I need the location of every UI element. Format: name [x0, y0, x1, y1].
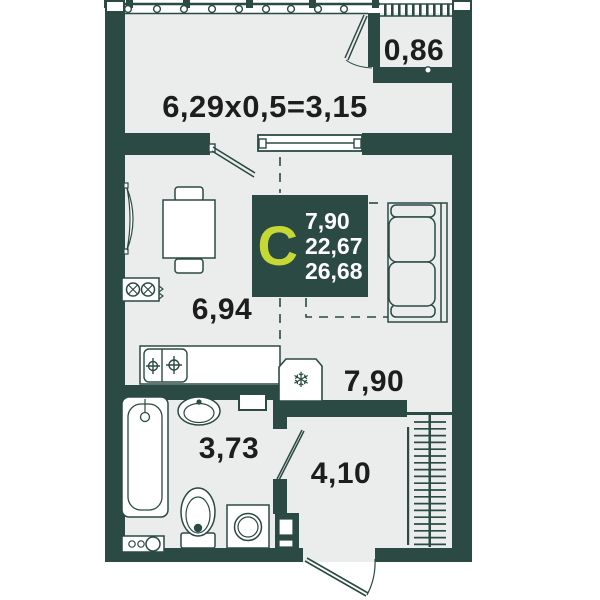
badge-living-area: 22,67 [305, 234, 363, 259]
badge-room-area: 7,90 [305, 209, 363, 234]
kitchen-sink [144, 349, 187, 382]
living-room-window [258, 135, 362, 151]
label-room: 7,90 [338, 365, 410, 399]
stove [122, 278, 163, 301]
bathroom-sink [178, 397, 220, 425]
label-bathroom: 3,73 [193, 432, 265, 466]
apartment-type-badge: С 7,90 22,67 26,68 [252, 195, 368, 297]
label-hallway: 4,10 [305, 457, 377, 491]
entry-door [305, 558, 375, 596]
label-kitchen-living: 6,94 [186, 293, 258, 327]
water-heater [122, 536, 164, 552]
toilet [181, 488, 215, 548]
washing-machine [227, 505, 269, 548]
floor-plan: 6,29х0,5=3,15 0,86 6,94 7,90 3,73 4,10 С… [0, 0, 600, 600]
label-small-balcony: 0,86 [378, 34, 450, 68]
badge-total-area: 26,68 [305, 259, 363, 284]
bathtub [122, 397, 168, 517]
kitchen-counter [140, 346, 280, 384]
balcony-window [104, 0, 380, 14]
vent-shaft [239, 394, 266, 410]
snowflake-icon: ❄ [288, 368, 314, 393]
electrical-panel [275, 513, 299, 548]
type-letter: С [257, 218, 297, 274]
label-balcony-calc: 6,29х0,5=3,15 [160, 89, 370, 125]
